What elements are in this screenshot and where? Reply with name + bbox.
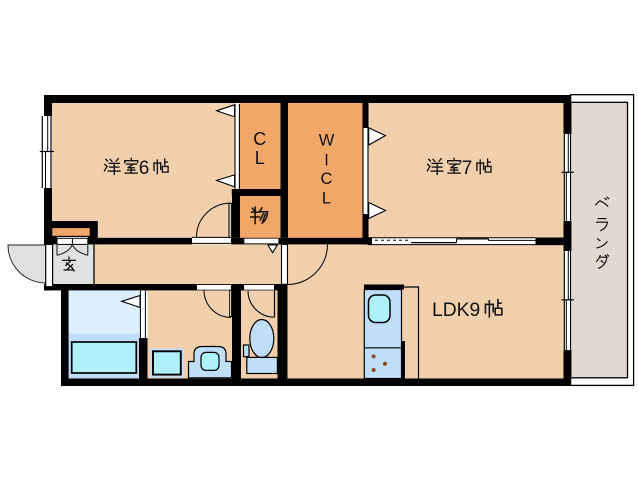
svg-text:W: W: [319, 132, 335, 150]
svg-text:LDK9: LDK9: [432, 300, 480, 321]
svg-text:I: I: [324, 152, 329, 170]
svg-text:L: L: [255, 148, 265, 168]
svg-text:L: L: [322, 189, 331, 207]
svg-text:6: 6: [139, 158, 150, 179]
svg-text:7: 7: [462, 158, 473, 179]
svg-text:C: C: [321, 170, 333, 188]
svg-text:C: C: [253, 129, 266, 149]
